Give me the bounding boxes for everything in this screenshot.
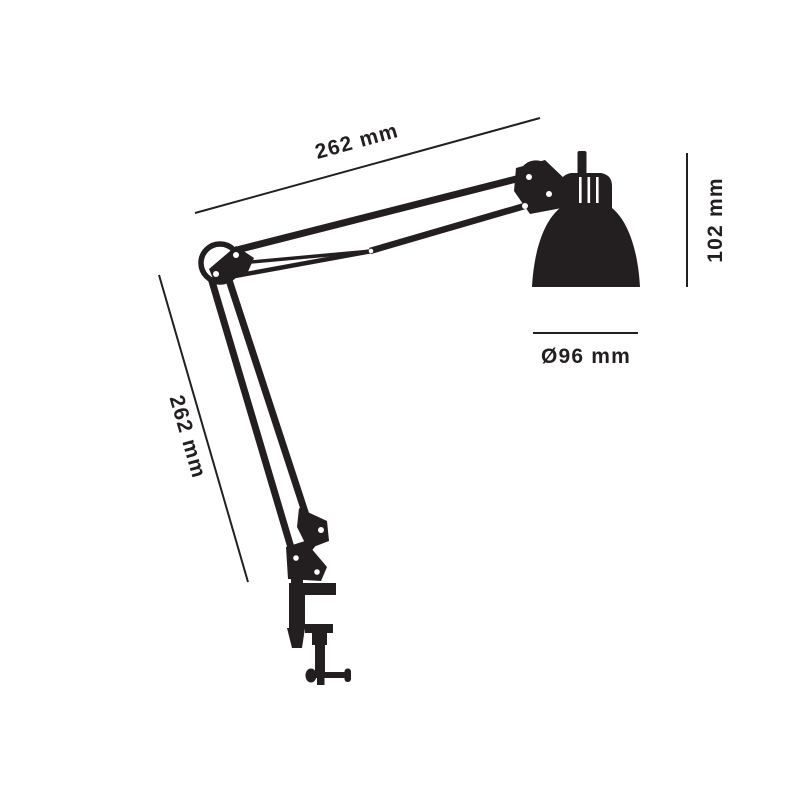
diagram-canvas: 262 mm 262 mm 102 mm Ø96 mm (0, 0, 800, 800)
rivet-dot (233, 252, 239, 258)
rivet-dot (213, 271, 219, 277)
upper-arm (213, 176, 528, 277)
pivot-dot (318, 527, 324, 533)
lamp-line-art (0, 0, 800, 800)
dimension-label-shade-height: 102 mm (704, 177, 728, 262)
rivet-dot (293, 555, 299, 561)
clamp-screw (315, 645, 325, 673)
lower-arm (211, 278, 329, 581)
vent-slot (588, 177, 591, 203)
rivet-dot (314, 569, 320, 575)
dimension-label-shade-diameter: Ø96 mm (541, 345, 631, 369)
desk-clamp (287, 575, 351, 685)
head-joint (514, 160, 568, 214)
vent-slot (596, 177, 599, 203)
vent-slot (579, 177, 582, 203)
pivot-dot (369, 249, 374, 254)
